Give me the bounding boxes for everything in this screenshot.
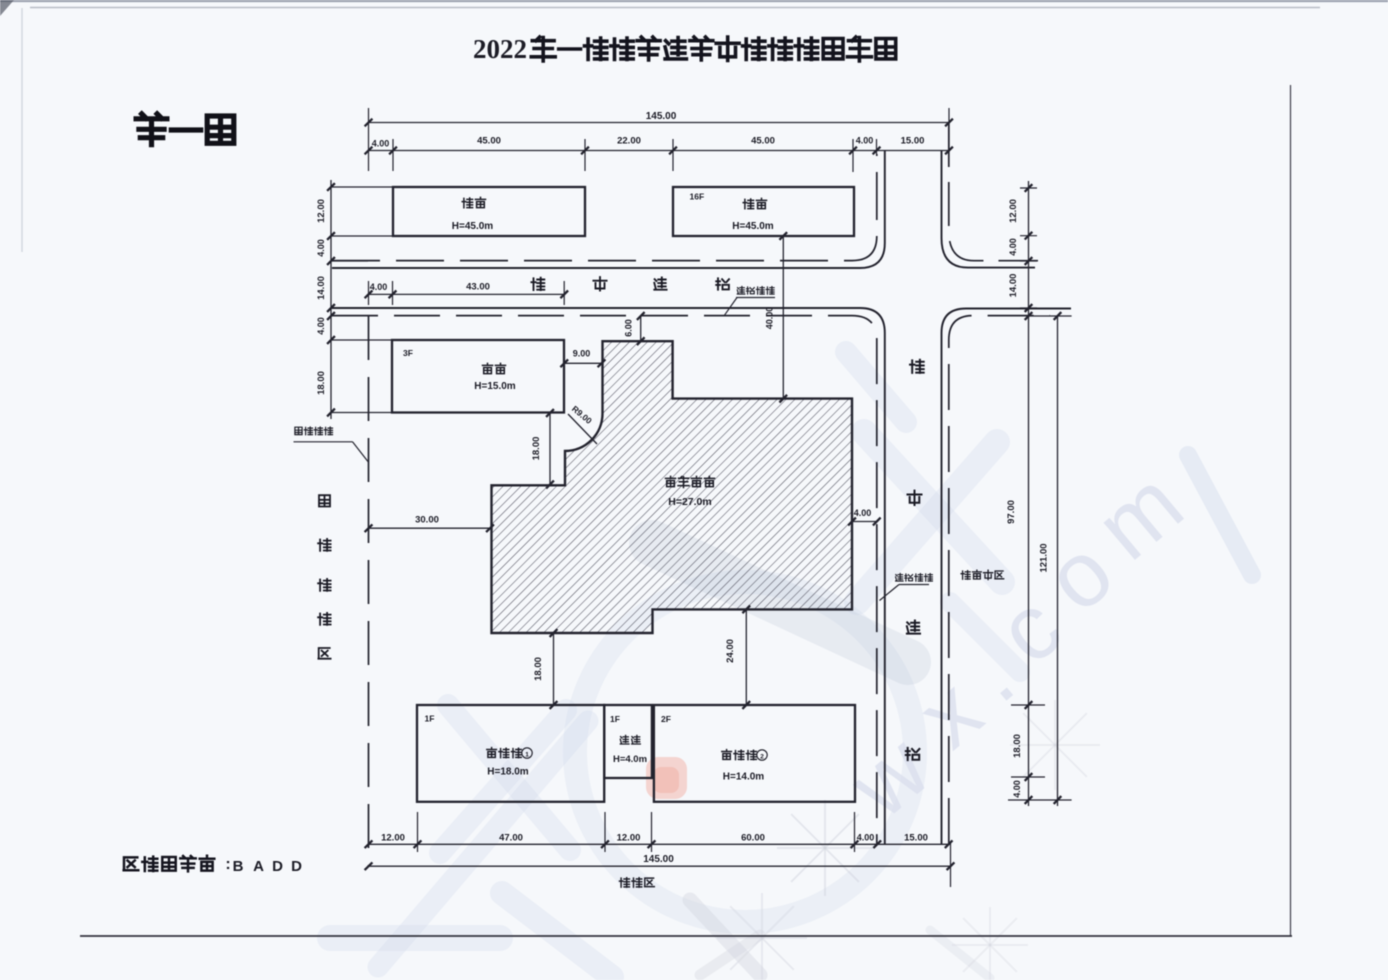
svg-text:1F: 1F	[425, 714, 435, 724]
svg-text:4.00: 4.00	[1008, 238, 1018, 256]
svg-text:12.00: 12.00	[617, 833, 641, 844]
svg-text:14.00: 14.00	[316, 276, 327, 300]
svg-text:12.00: 12.00	[316, 199, 327, 223]
svg-text::: :	[225, 856, 230, 873]
svg-text:4.00: 4.00	[854, 508, 872, 518]
svg-text:D: D	[291, 858, 302, 875]
svg-text:4.00: 4.00	[316, 239, 326, 257]
svg-text:45.00: 45.00	[751, 136, 775, 147]
svg-text:A: A	[253, 858, 264, 875]
svg-text:H=27.0m: H=27.0m	[668, 496, 712, 508]
svg-text:121.00: 121.00	[1039, 543, 1050, 572]
svg-text:H=45.0m: H=45.0m	[452, 221, 494, 232]
svg-text:2F: 2F	[661, 714, 671, 724]
svg-text:D: D	[272, 858, 283, 875]
svg-text:4.00: 4.00	[372, 139, 390, 149]
svg-text:4.00: 4.00	[857, 833, 875, 843]
svg-text:H=15.0m: H=15.0m	[474, 381, 516, 392]
svg-text:97.00: 97.00	[1006, 500, 1017, 524]
svg-text:6.00: 6.00	[624, 319, 634, 337]
svg-text:B: B	[233, 858, 244, 875]
svg-text:18.00: 18.00	[1012, 734, 1023, 758]
svg-text:1F: 1F	[610, 714, 620, 724]
svg-text:H=14.0m: H=14.0m	[723, 772, 765, 783]
svg-text:18.00: 18.00	[531, 437, 542, 461]
svg-text:4.00: 4.00	[316, 317, 326, 335]
svg-text:45.00: 45.00	[477, 136, 501, 147]
svg-text:15.00: 15.00	[904, 833, 928, 844]
svg-text:18.00: 18.00	[316, 371, 327, 395]
svg-text:4.00: 4.00	[1012, 780, 1022, 798]
svg-text:60.00: 60.00	[741, 833, 765, 844]
svg-text:2022: 2022	[473, 34, 527, 64]
svg-text:16F: 16F	[690, 192, 705, 202]
svg-text:145.00: 145.00	[646, 111, 677, 122]
svg-text:24.00: 24.00	[725, 639, 736, 663]
svg-text:H=4.0m: H=4.0m	[613, 754, 647, 765]
svg-text:18.00: 18.00	[533, 657, 544, 681]
svg-text:22.00: 22.00	[617, 136, 641, 147]
svg-text:4.00: 4.00	[370, 282, 388, 292]
svg-text:30.00: 30.00	[415, 515, 439, 526]
svg-text:40.00: 40.00	[765, 307, 775, 330]
svg-text:47.00: 47.00	[499, 833, 523, 844]
svg-text:15.00: 15.00	[901, 136, 925, 147]
svg-text:43.00: 43.00	[466, 282, 490, 293]
svg-text:H=18.0m: H=18.0m	[487, 767, 529, 778]
svg-text:2: 2	[760, 754, 764, 761]
svg-text:12.00: 12.00	[381, 833, 405, 844]
svg-text:1: 1	[525, 752, 529, 759]
svg-text:4.00: 4.00	[856, 136, 874, 146]
svg-text:145.00: 145.00	[643, 854, 674, 865]
svg-text:H=45.0m: H=45.0m	[732, 221, 774, 232]
svg-text:14.00: 14.00	[1008, 274, 1019, 298]
svg-text:9.00: 9.00	[573, 349, 591, 359]
svg-text:3F: 3F	[403, 348, 413, 358]
svg-text:12.00: 12.00	[1008, 199, 1019, 223]
